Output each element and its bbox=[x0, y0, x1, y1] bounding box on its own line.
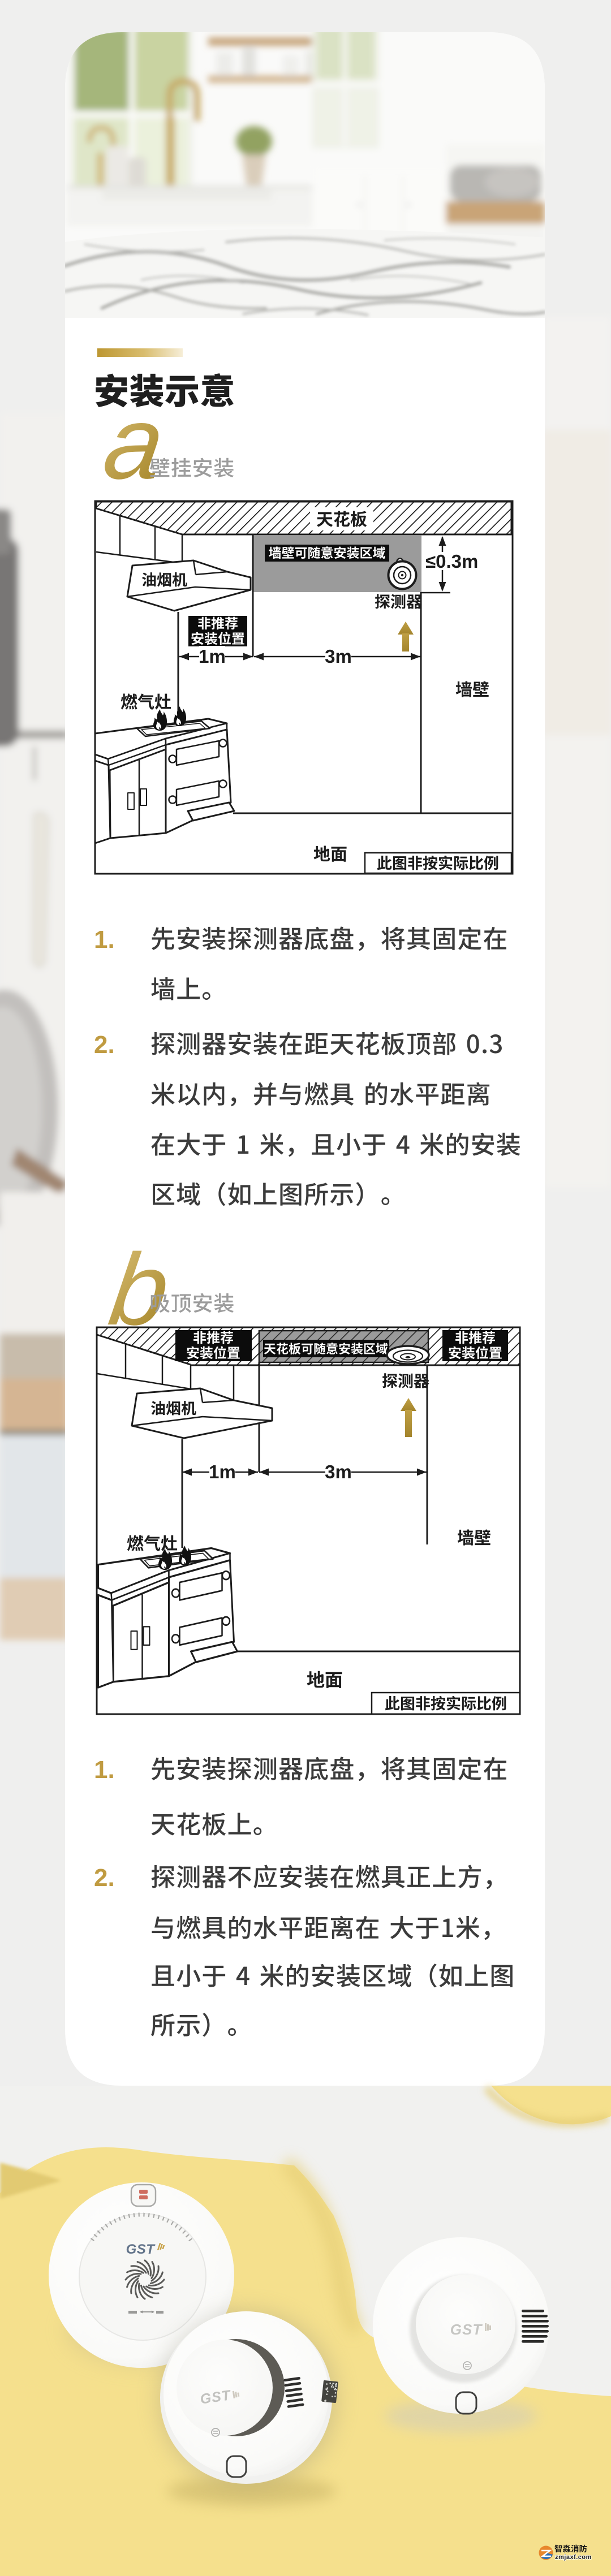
svg-text:zmjaxf.com: zmjaxf.com bbox=[555, 2554, 592, 2561]
svg-text:1m: 1m bbox=[209, 1461, 236, 1482]
svg-text:≤0.3m: ≤0.3m bbox=[425, 551, 478, 572]
svg-text:1m: 1m bbox=[199, 646, 226, 667]
svg-text:GST: GST bbox=[126, 2242, 156, 2257]
svg-text:1.: 1. bbox=[94, 926, 115, 953]
svg-text:3m: 3m bbox=[325, 1461, 352, 1482]
svg-text:GST: GST bbox=[450, 2321, 483, 2338]
svg-text:3m: 3m bbox=[325, 646, 352, 667]
svg-text:2.: 2. bbox=[94, 1864, 115, 1892]
svg-text:1.: 1. bbox=[94, 1756, 115, 1784]
svg-text:2.: 2. bbox=[94, 1031, 115, 1059]
